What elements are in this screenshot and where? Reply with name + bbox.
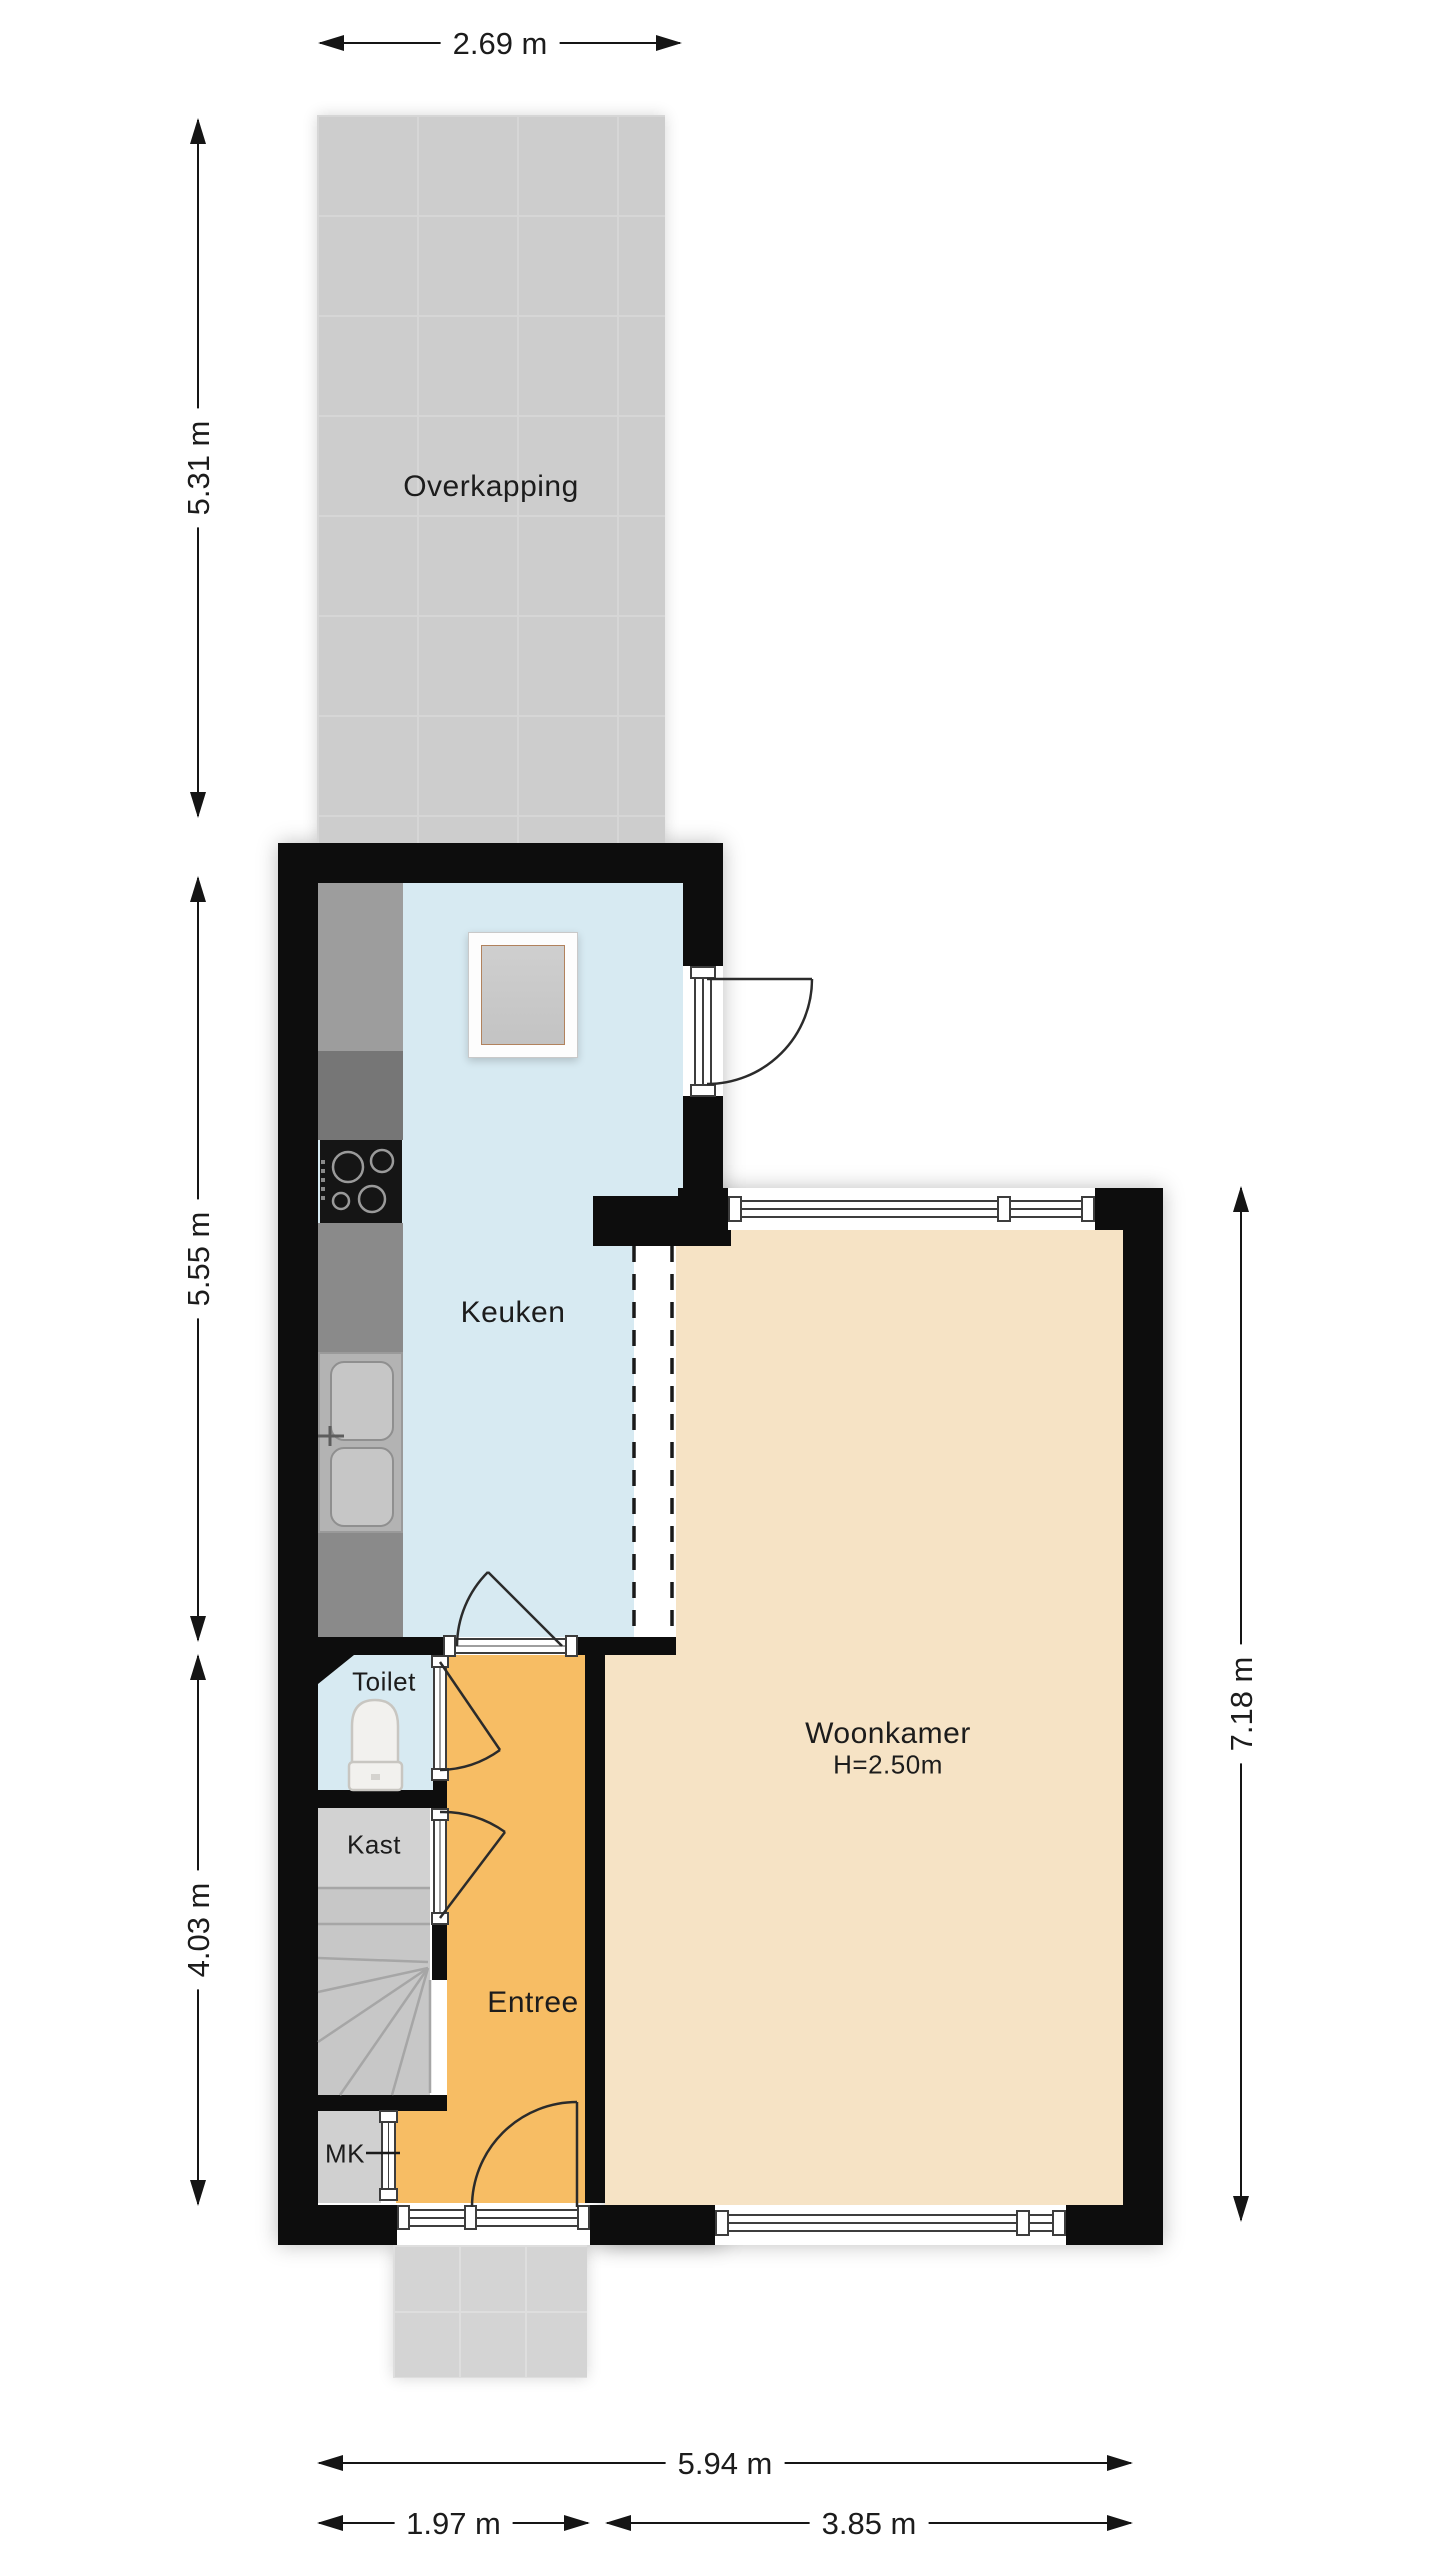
wall-toilet-bottom [318, 1790, 447, 1808]
kitchen-counter-lower [318, 1533, 403, 1637]
dimension-left-overkapping-label: 5.31 m [179, 409, 219, 528]
room-label-woonkamer: Woonkamer [805, 1717, 971, 1751]
kitchen-counter-tall-cabinet [318, 1051, 403, 1140]
door-jamb [431, 1655, 449, 1668]
room-label-mk: MK [325, 2139, 365, 2170]
frontdoor-panel [477, 2209, 578, 2227]
cooktop-icon [320, 1140, 402, 1223]
room-label-entree: Entree [487, 1986, 578, 2020]
backdoor-panel [694, 978, 712, 1084]
wall-kitchen-right-lower [683, 1096, 723, 1196]
wall-kast-door-stub [432, 1917, 447, 1980]
wall-woonkamer-top-left-pier [678, 1188, 728, 1230]
dimension-left-entree: 4.03 m [197, 1656, 199, 2204]
toilet-door-strip [433, 1666, 447, 1770]
dimension-bottom-left-label: 1.97 m [394, 2504, 513, 2544]
dimension-bottom-left: 1.97 m [319, 2522, 588, 2524]
window-jamb [728, 1196, 742, 1222]
room-label-toilet: Toilet [352, 1667, 416, 1698]
window-mullion [997, 1196, 1011, 1222]
window-woonkamer-bottom-glass-left [727, 2214, 1017, 2232]
kitchen-island [468, 932, 578, 1058]
kitchen-counter-upper [318, 883, 403, 1051]
wall-bottom-right [1066, 2205, 1163, 2245]
wall-bottom-left [278, 2205, 397, 2245]
wall-kitchen-bottom-left [318, 1637, 453, 1655]
door-jamb [431, 1768, 449, 1781]
kitchen-island-top [481, 945, 565, 1045]
door-jamb [690, 1084, 716, 1097]
dimension-bottom-total-label: 5.94 m [666, 2444, 785, 2484]
dimension-bottom-total: 5.94 m [319, 2462, 1131, 2464]
porch-area [393, 2245, 587, 2378]
wall-left [278, 843, 318, 2245]
sink-basin-top [330, 1361, 394, 1441]
dimension-top-width-label: 2.69 m [441, 24, 560, 64]
wall-right [1123, 1188, 1163, 2245]
room-label-kast: Kast [347, 1830, 401, 1861]
wall-entree-woonkamer [585, 1655, 605, 2203]
window-jamb [715, 2210, 729, 2236]
window-woonkamer-bottom-glass-right [1029, 2214, 1054, 2232]
sidelight-glass [407, 2209, 465, 2227]
wall-stairs-bottom [318, 2095, 447, 2111]
door-jamb [397, 2205, 410, 2230]
stairs-area [318, 1888, 430, 2095]
dimension-left-entree-label: 4.03 m [179, 1871, 219, 1990]
wall-bottom-mid [590, 2205, 715, 2245]
wall-top [278, 843, 723, 883]
door-jamb [431, 1808, 449, 1821]
window-woonkamer-top-glass-right [1010, 1200, 1083, 1218]
entree-floor [447, 1655, 585, 2203]
wall-kitchen-right-upper [683, 883, 723, 966]
dimension-right-woonkamer: 7.18 m [1240, 1188, 1242, 2220]
kitchen-door-lines [453, 1638, 568, 1654]
dimension-bottom-right-label: 3.85 m [810, 2504, 929, 2544]
door-jamb [565, 1635, 578, 1657]
floor-plan: Overkapping Keuken Toilet Kast Entree MK… [0, 0, 1440, 2560]
door-jamb [690, 966, 716, 979]
kitchen-counter-mid [318, 1223, 403, 1352]
door-jamb [443, 1635, 456, 1657]
window-woonkamer-top-glass-left [740, 1200, 998, 1218]
entree-floor-lower-left [396, 2110, 447, 2203]
dimension-left-overkapping: 5.31 m [197, 120, 199, 816]
dimension-left-keuken-label: 5.55 m [179, 1200, 219, 1319]
door-jamb [379, 2188, 398, 2201]
wall-kitchen-bottom-right [568, 1637, 676, 1655]
window-mullion [1016, 2210, 1030, 2236]
door-jamb [431, 1912, 449, 1925]
dimension-top-width: 2.69 m [320, 42, 680, 44]
door-jamb [464, 2205, 477, 2230]
passage-strip [634, 1246, 676, 1637]
dimension-left-keuken: 5.55 m [197, 878, 199, 1640]
window-jamb [1081, 1196, 1095, 1222]
dimension-right-woonkamer-label: 7.18 m [1222, 1645, 1262, 1764]
sink-basin-bottom [330, 1447, 394, 1527]
mk-door-strip [381, 2121, 396, 2190]
door-jamb [577, 2205, 590, 2230]
woonkamer-floor-upper [676, 1230, 1123, 1637]
room-label-overkapping: Overkapping [403, 470, 579, 504]
window-jamb [1052, 2210, 1066, 2236]
door-jamb [379, 2110, 398, 2123]
kast-door-strip [433, 1818, 447, 1914]
room-label-woonkamer-height: H=2.50m [833, 1750, 943, 1781]
room-label-keuken: Keuken [461, 1296, 566, 1330]
dimension-bottom-right: 3.85 m [607, 2522, 1131, 2524]
